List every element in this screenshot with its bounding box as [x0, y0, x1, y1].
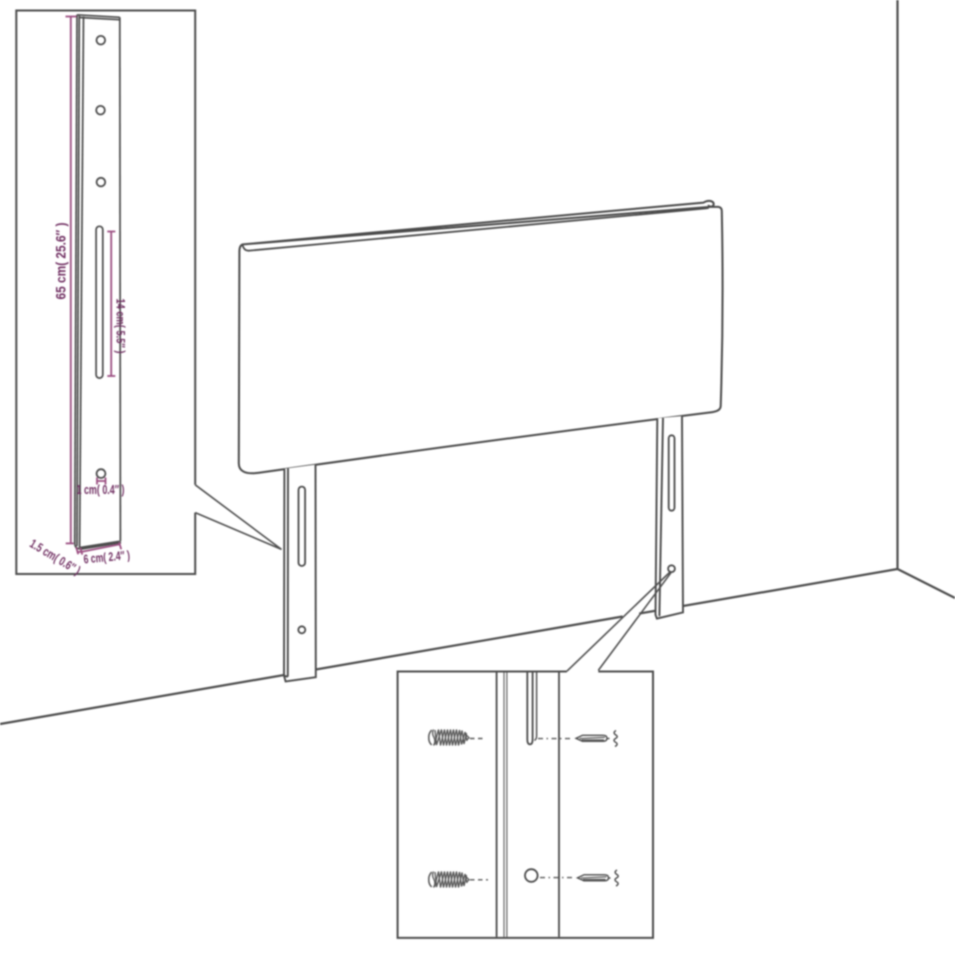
- svg-text:65 cm( 25.6″ ): 65 cm( 25.6″ ): [53, 223, 68, 300]
- svg-text:14 cm( 5.5″ ): 14 cm( 5.5″ ): [113, 299, 127, 354]
- svg-text:1 cm( 0.4″ ): 1 cm( 0.4″ ): [77, 483, 125, 497]
